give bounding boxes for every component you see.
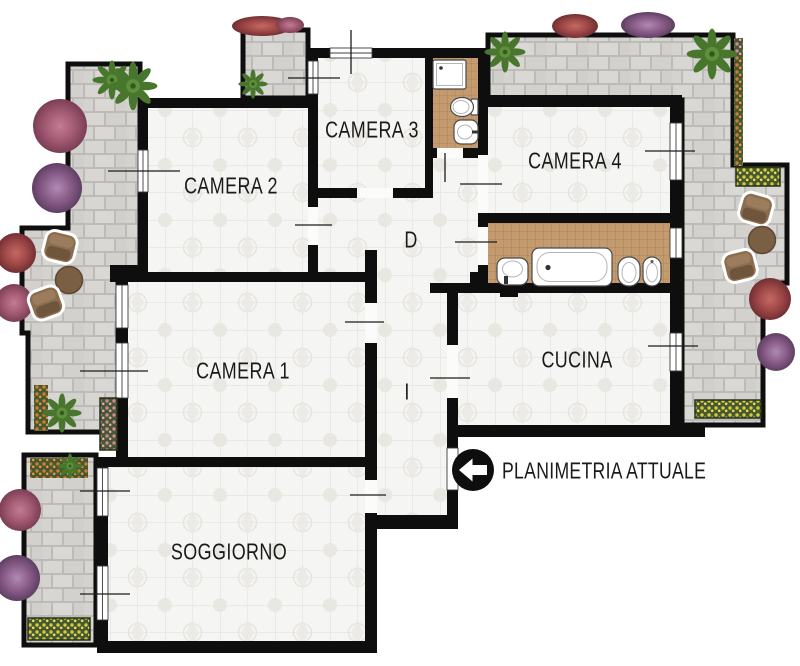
table: [749, 227, 776, 254]
flower-planter: [34, 385, 48, 431]
room-label-disimpegno: D: [404, 229, 417, 252]
plant-icon: [109, 62, 158, 111]
chair: [41, 229, 79, 266]
room-label-camera2: CAMERA 2: [184, 175, 278, 198]
bathtub-icon: [532, 248, 612, 286]
bush: [749, 278, 791, 320]
flower-planter: [100, 398, 117, 450]
balcony-bottom-left: [24, 455, 96, 645]
flower-planter: [28, 618, 90, 640]
toilet-icon: [451, 98, 479, 117]
chair: [721, 248, 759, 285]
floor-plan-drawing: [0, 0, 800, 666]
plant-icon: [238, 69, 267, 98]
room-label-soggiorno: SOGGIORNO: [171, 541, 287, 564]
flower-planter: [736, 167, 780, 186]
bush: [33, 99, 87, 153]
plant-icon: [485, 32, 526, 73]
bush: [276, 17, 304, 33]
flower-planter: [695, 400, 761, 418]
plant-icon: [57, 453, 82, 478]
room-label-camera3: CAMERA 3: [325, 119, 419, 142]
sink-icon: [454, 120, 478, 144]
table: [56, 267, 83, 294]
shower-icon: [433, 60, 466, 89]
room-label-cucina: CUCINA: [541, 349, 612, 372]
bush: [0, 489, 41, 531]
floor-plan: CAMERA 2 CAMERA 3 CAMERA 4 CAMERA 1 CUCI…: [0, 0, 800, 666]
room-label-camera1: CAMERA 1: [196, 360, 290, 383]
room-label-ingresso: I: [404, 381, 409, 404]
floor-disimpegno: [318, 150, 483, 290]
arrow-left-icon: [452, 449, 494, 491]
flower-planter: [734, 40, 743, 166]
bush: [621, 12, 675, 38]
legend-label: PLANIMETRIA ATTUALE: [502, 458, 706, 485]
toilet-icon: [618, 257, 640, 286]
room-label-camera4: CAMERA 4: [528, 150, 622, 173]
sink-icon: [497, 258, 528, 285]
bush: [552, 14, 598, 38]
bidet-icon: [643, 257, 661, 286]
plant-icon: [687, 29, 738, 80]
bush: [32, 163, 82, 213]
flower-planter: [30, 458, 88, 478]
bush: [757, 333, 795, 371]
plant-icon: [43, 394, 82, 433]
